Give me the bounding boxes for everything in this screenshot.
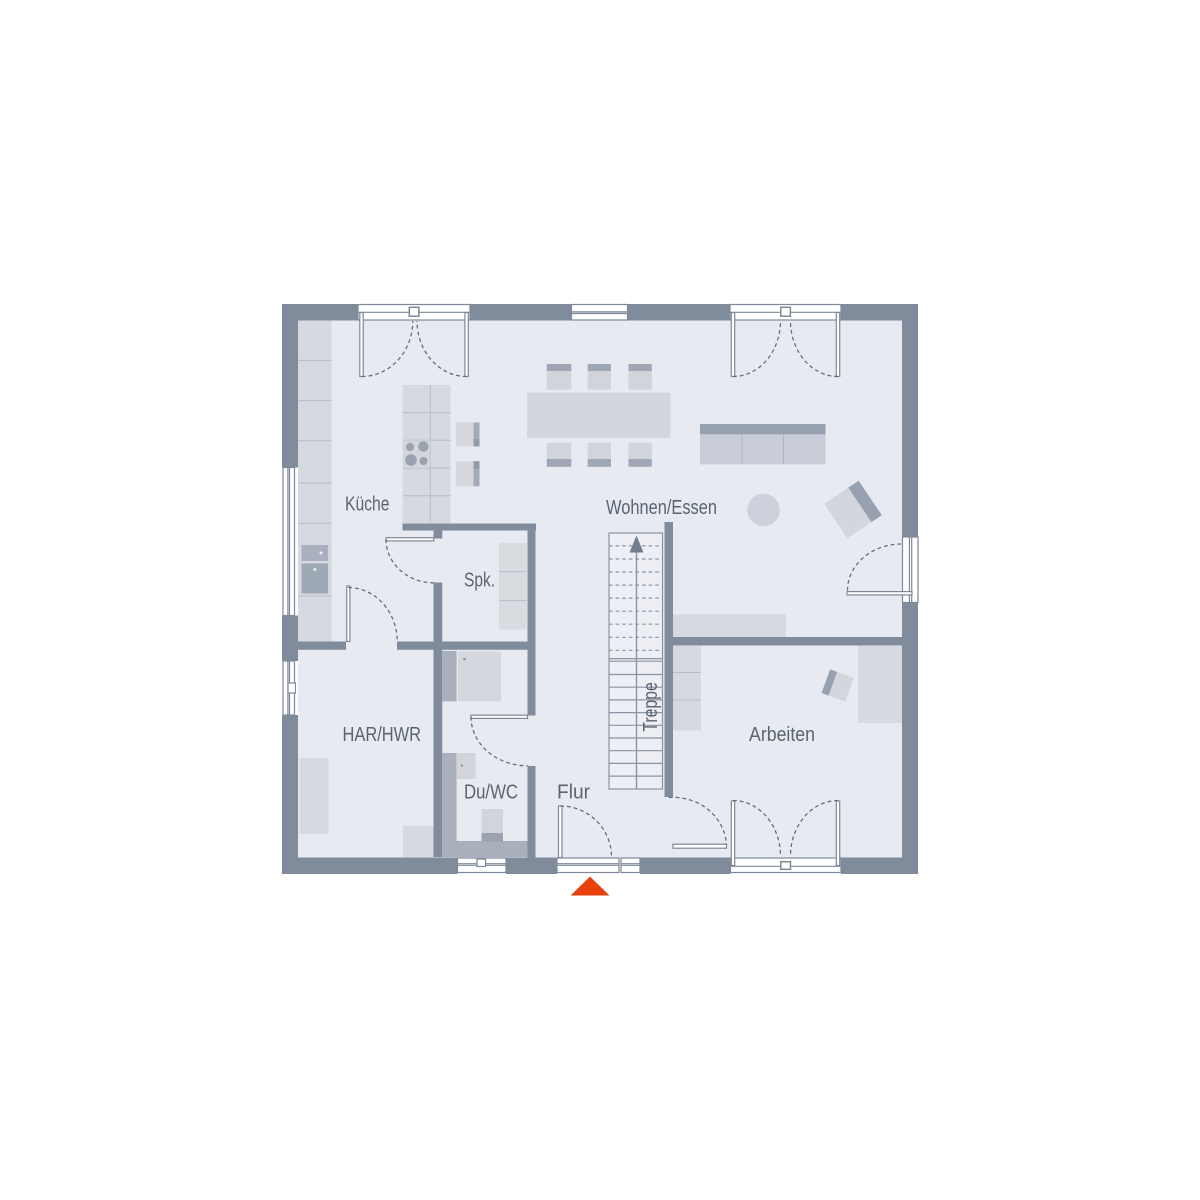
svg-text:Du/WC: Du/WC bbox=[464, 782, 518, 804]
svg-text:Spk.: Spk. bbox=[464, 570, 495, 592]
svg-text:Arbeiten: Arbeiten bbox=[749, 724, 815, 746]
svg-text:Küche: Küche bbox=[345, 494, 390, 516]
svg-text:Flur: Flur bbox=[557, 782, 590, 804]
svg-text:Wohnen/Essen: Wohnen/Essen bbox=[606, 497, 717, 519]
svg-text:HAR/HWR: HAR/HWR bbox=[343, 724, 422, 746]
svg-text:Treppe: Treppe bbox=[640, 682, 662, 732]
